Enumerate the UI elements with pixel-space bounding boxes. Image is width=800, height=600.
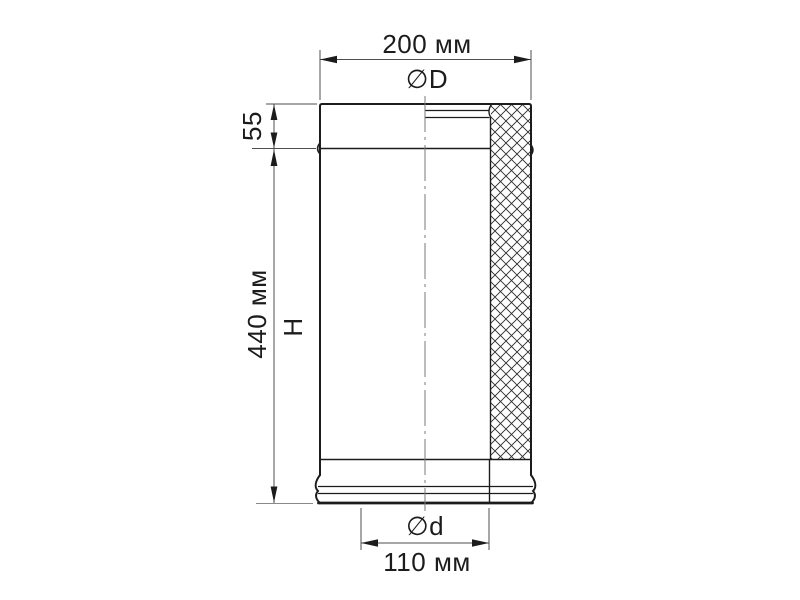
arrow-up-icon <box>271 150 278 167</box>
dimension-body-height: 440 мм H <box>242 149 313 504</box>
arrow-right-icon <box>514 56 531 63</box>
dimension-outer-width: 200 мм ∅D <box>320 29 531 100</box>
insulation-band <box>489 104 531 459</box>
height-symbol: H <box>278 317 308 336</box>
outer-width-value: 200 мм <box>382 29 471 59</box>
outer-diameter-symbol: ∅D <box>406 64 448 94</box>
inner-width-value: 110 мм <box>383 547 470 577</box>
arrow-up-icon <box>271 105 278 121</box>
inner-diameter-symbol: ∅d <box>406 511 444 541</box>
collar-height-value: 55 <box>237 111 267 141</box>
inner-liner-top-lines <box>425 111 489 118</box>
arrow-right-icon <box>472 539 489 546</box>
drawing-canvas: 200 мм ∅D 55 440 мм H ∅d 110 мм <box>0 0 800 600</box>
dimension-collar-height: 55 <box>237 104 317 149</box>
insulation-hatch-fill <box>491 105 531 460</box>
arrow-left-icon <box>320 56 337 63</box>
arrow-down-icon <box>271 133 278 149</box>
arrow-left-icon <box>361 539 378 546</box>
body-height-value: 440 мм <box>242 269 272 358</box>
arrow-down-icon <box>271 487 278 503</box>
pipe-section-drawing: 200 мм ∅D 55 440 мм H ∅d 110 мм <box>0 0 800 600</box>
dimension-inner-width: ∅d 110 мм <box>361 508 489 577</box>
pipe-right-bead-bulge <box>531 475 535 503</box>
pipe-left-bead-bulge <box>316 475 320 503</box>
